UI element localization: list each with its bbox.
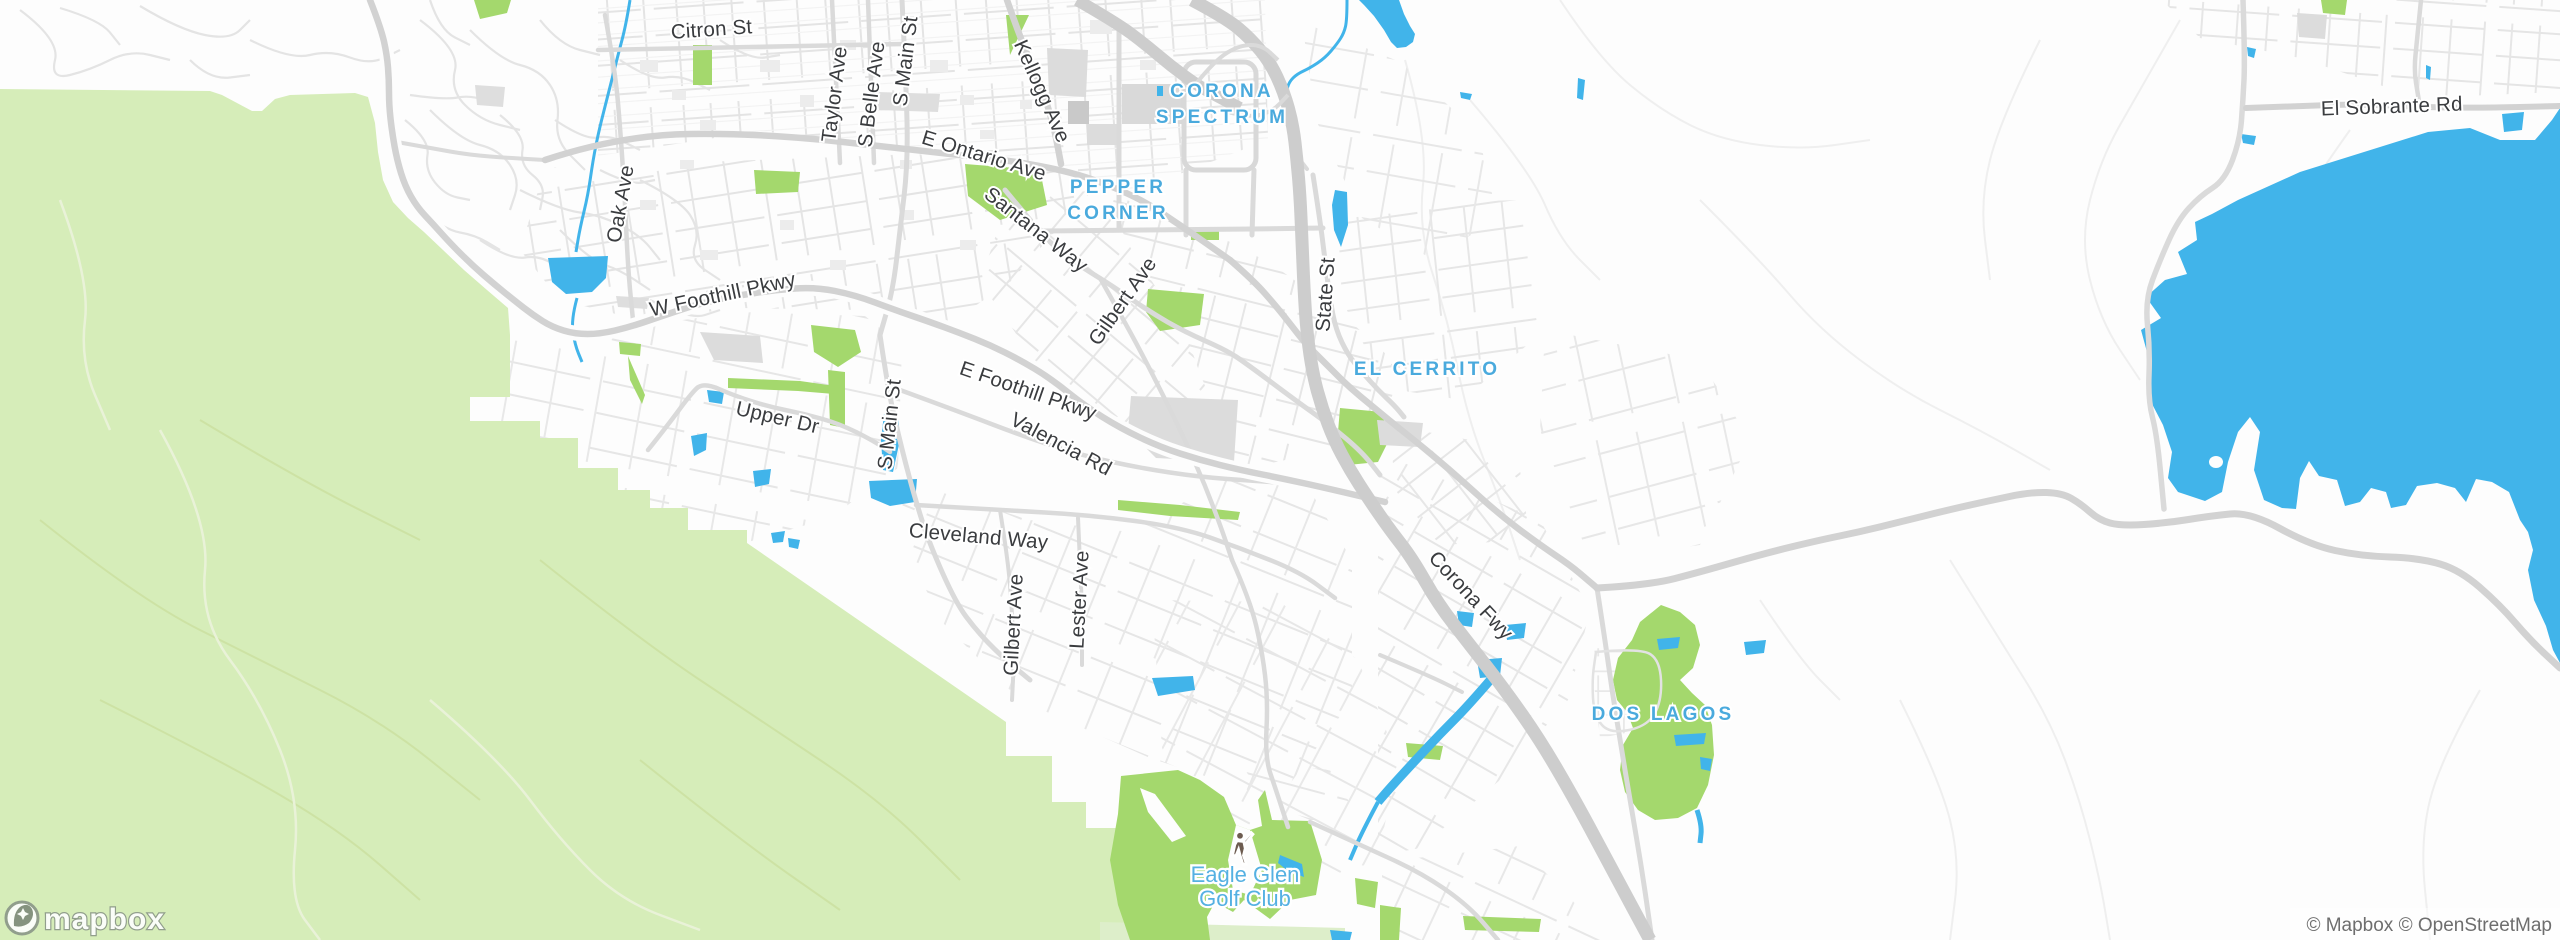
svg-text:CORONA: CORONA [1170,81,1274,102]
svg-text:PEPPER: PEPPER [1070,177,1166,198]
svg-text:CORNER: CORNER [1067,203,1169,224]
svg-text:DOS LAGOS: DOS LAGOS [1592,704,1735,725]
svg-text:SPECTRUM: SPECTRUM [1156,107,1288,128]
svg-text:© Mapbox © OpenStreetMap: © Mapbox © OpenStreetMap [2306,915,2552,936]
svg-text:Golf Club: Golf Club [1199,886,1291,911]
svg-text:mapbox: mapbox [44,903,165,936]
svg-text:Eagle Glen: Eagle Glen [1191,862,1300,887]
svg-text:EL CERRITO: EL CERRITO [1354,359,1500,380]
